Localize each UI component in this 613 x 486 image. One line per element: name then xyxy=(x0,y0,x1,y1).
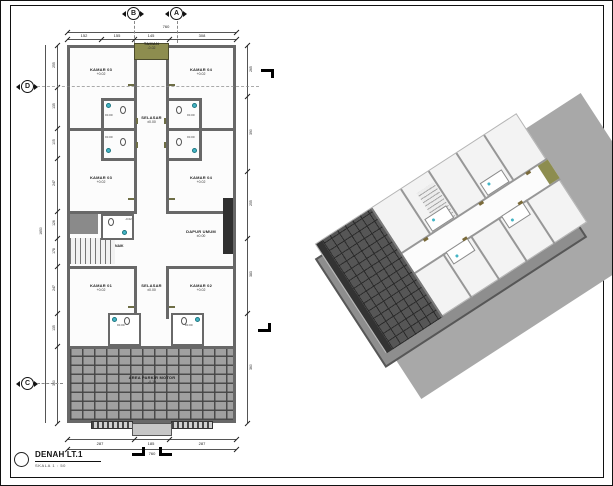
bath-level: ±0.00 xyxy=(105,135,113,139)
gate-right xyxy=(171,421,213,429)
dapur-umum-label: DAPUR UMUM ±0.00 xyxy=(170,229,232,238)
gate-left xyxy=(91,421,133,429)
door-marker xyxy=(136,142,138,148)
wall xyxy=(101,98,104,161)
wall xyxy=(101,158,134,161)
drawing-scale: SKALA 1 : 50 xyxy=(35,463,66,468)
grid-marker-arrow xyxy=(165,11,169,17)
grid-marker-letter: C xyxy=(25,380,30,387)
bath-level: -0.02 xyxy=(125,217,132,221)
dim-label: 247 xyxy=(52,176,56,190)
area-level: -0.10 xyxy=(70,380,234,384)
grid-marker-letter: A xyxy=(174,10,179,17)
bath-level: ±0.00 xyxy=(105,113,113,117)
room-label-kamar-top-right: KAMAR 04 +0.02 xyxy=(170,67,232,76)
grid-marker-d: D xyxy=(21,80,34,93)
selasar-lower-label: SELASAR ±0.00 xyxy=(135,283,168,292)
bath-level: ±0.00 xyxy=(185,323,193,327)
dim-label: 105 xyxy=(52,135,56,149)
wall xyxy=(166,158,169,214)
door-marker xyxy=(169,198,175,200)
wall xyxy=(169,266,233,269)
toilet-icon xyxy=(108,218,114,226)
stair-landing xyxy=(70,214,98,234)
parking-tiled-floor xyxy=(70,349,233,420)
grid-leader-line xyxy=(134,21,135,43)
toilet-icon xyxy=(176,138,182,146)
bath-level: ±0.00 xyxy=(187,113,195,117)
dim-label: 383 xyxy=(249,267,253,281)
wall xyxy=(199,98,202,161)
parking-label: AREA PARKIR MOTOR -0.10 xyxy=(70,375,234,384)
room-level: +0.02 xyxy=(70,72,132,76)
section-cut-mark xyxy=(159,447,172,456)
wall-3d xyxy=(525,199,556,245)
wall xyxy=(101,98,134,101)
dim-label: 126 xyxy=(52,216,56,230)
dim-label: 155 xyxy=(109,33,125,38)
wall xyxy=(169,98,202,101)
axonometric-3d-view xyxy=(299,99,611,384)
wall-3d xyxy=(470,235,501,281)
dim-label: 360 xyxy=(249,360,253,374)
stair-direction-label: NAIK xyxy=(115,244,124,248)
toilet-icon xyxy=(120,138,126,146)
dim-label: 390 xyxy=(249,125,253,139)
grid-marker-arrow xyxy=(140,11,144,17)
room-level: +0.02 xyxy=(70,288,132,292)
sink-icon xyxy=(122,230,127,235)
grid-line-d xyxy=(37,86,259,87)
dim-label: 145 xyxy=(143,33,159,38)
room-level: +0.02 xyxy=(170,72,232,76)
dim-label: 178 xyxy=(52,244,56,258)
grid-line-c xyxy=(37,383,63,384)
sink-icon xyxy=(106,148,111,153)
door-marker xyxy=(128,198,134,200)
door-marker xyxy=(169,306,175,308)
grid-marker-arrow xyxy=(183,11,187,17)
grid-marker-letter: D xyxy=(25,83,30,90)
wall xyxy=(134,266,137,319)
door-marker xyxy=(128,306,134,308)
sink-icon xyxy=(192,103,197,108)
dim-label: 287 xyxy=(92,441,108,446)
section-cut-mark xyxy=(258,323,271,332)
section-cut-mark xyxy=(132,447,145,456)
grid-marker-arrow xyxy=(34,84,38,90)
wall xyxy=(134,158,137,214)
grid-leader-line xyxy=(177,21,178,43)
dim-label: 135 xyxy=(52,99,56,113)
dim-label: 308 xyxy=(194,33,210,38)
wall xyxy=(134,98,137,161)
dim-label: 185 xyxy=(143,441,159,446)
dim-label: 1650 xyxy=(39,224,43,238)
room-label-kamar-top-left: KAMAR 03 +0.02 xyxy=(70,67,132,76)
dim-line xyxy=(67,449,236,450)
sink-icon xyxy=(106,103,111,108)
title-block-symbol-icon xyxy=(14,452,29,467)
grid-marker-arrow xyxy=(122,11,126,17)
grid-marker-arrow xyxy=(16,84,20,90)
area-level: -0.02 xyxy=(135,46,168,50)
drawing-sheet: NAIK KAM xyxy=(0,0,613,486)
toilet-icon xyxy=(120,106,126,114)
dim-label: 760 xyxy=(156,24,176,29)
grid-marker-b: B xyxy=(127,7,140,20)
sink-icon xyxy=(192,148,197,153)
dim-label: 255 xyxy=(249,196,253,210)
dim-line xyxy=(247,45,248,423)
wall xyxy=(166,98,169,161)
dim-label: 135 xyxy=(52,321,56,335)
sink-icon xyxy=(112,317,117,322)
dim-line xyxy=(57,45,58,423)
wall xyxy=(166,266,169,319)
grid-marker-c: C xyxy=(21,377,34,390)
wall-3d xyxy=(456,153,487,199)
area-level: ±0.00 xyxy=(135,288,168,292)
door-marker xyxy=(164,142,166,148)
grid-marker-arrow xyxy=(16,381,20,387)
dim-label: 152 xyxy=(76,33,92,38)
wall xyxy=(169,158,202,161)
sink-icon xyxy=(195,317,200,322)
toilet-icon xyxy=(176,106,182,114)
room-label-kamar-bottom-left: KAMAR 01 +0.02 xyxy=(70,283,132,292)
grid-marker-letter: B xyxy=(131,10,136,17)
dim-line xyxy=(45,45,46,423)
room-label-kamar-bottom-right: KAMAR 02 +0.02 xyxy=(170,283,232,292)
area-level: ±0.00 xyxy=(170,234,232,238)
grid-marker-arrow xyxy=(34,381,38,387)
room-level: +0.02 xyxy=(170,180,232,184)
dim-label: 255 xyxy=(52,58,56,72)
section-cut-mark xyxy=(261,69,274,78)
grid-marker-a: A xyxy=(170,7,183,20)
bath-level: ±0.00 xyxy=(117,323,125,327)
room-label-kamar-mid-right: KAMAR 04 +0.02 xyxy=(170,175,232,184)
taman-label: TAMAN -0.02 xyxy=(135,41,168,50)
wall xyxy=(70,266,134,269)
dim-label: 265 xyxy=(249,62,253,76)
dim-label: 287 xyxy=(194,441,210,446)
dim-line xyxy=(67,39,236,40)
selasar-upper-label: SELASAR ±0.00 xyxy=(135,115,168,124)
room-label-kamar-mid-left: KAMAR 03 +0.02 xyxy=(70,175,132,184)
bath-level: ±0.00 xyxy=(187,135,195,139)
drawing-title: DENAH LT.1 xyxy=(35,450,83,459)
driveway-slab xyxy=(132,423,172,436)
room-level: +0.02 xyxy=(170,288,232,292)
area-level: ±0.00 xyxy=(135,120,168,124)
room-level: +0.02 xyxy=(70,180,132,184)
title-underline xyxy=(35,461,101,462)
stair-treads xyxy=(70,238,115,264)
dim-label: 247 xyxy=(52,281,56,295)
kitchen-counter xyxy=(223,198,233,254)
dim-line xyxy=(67,439,236,440)
